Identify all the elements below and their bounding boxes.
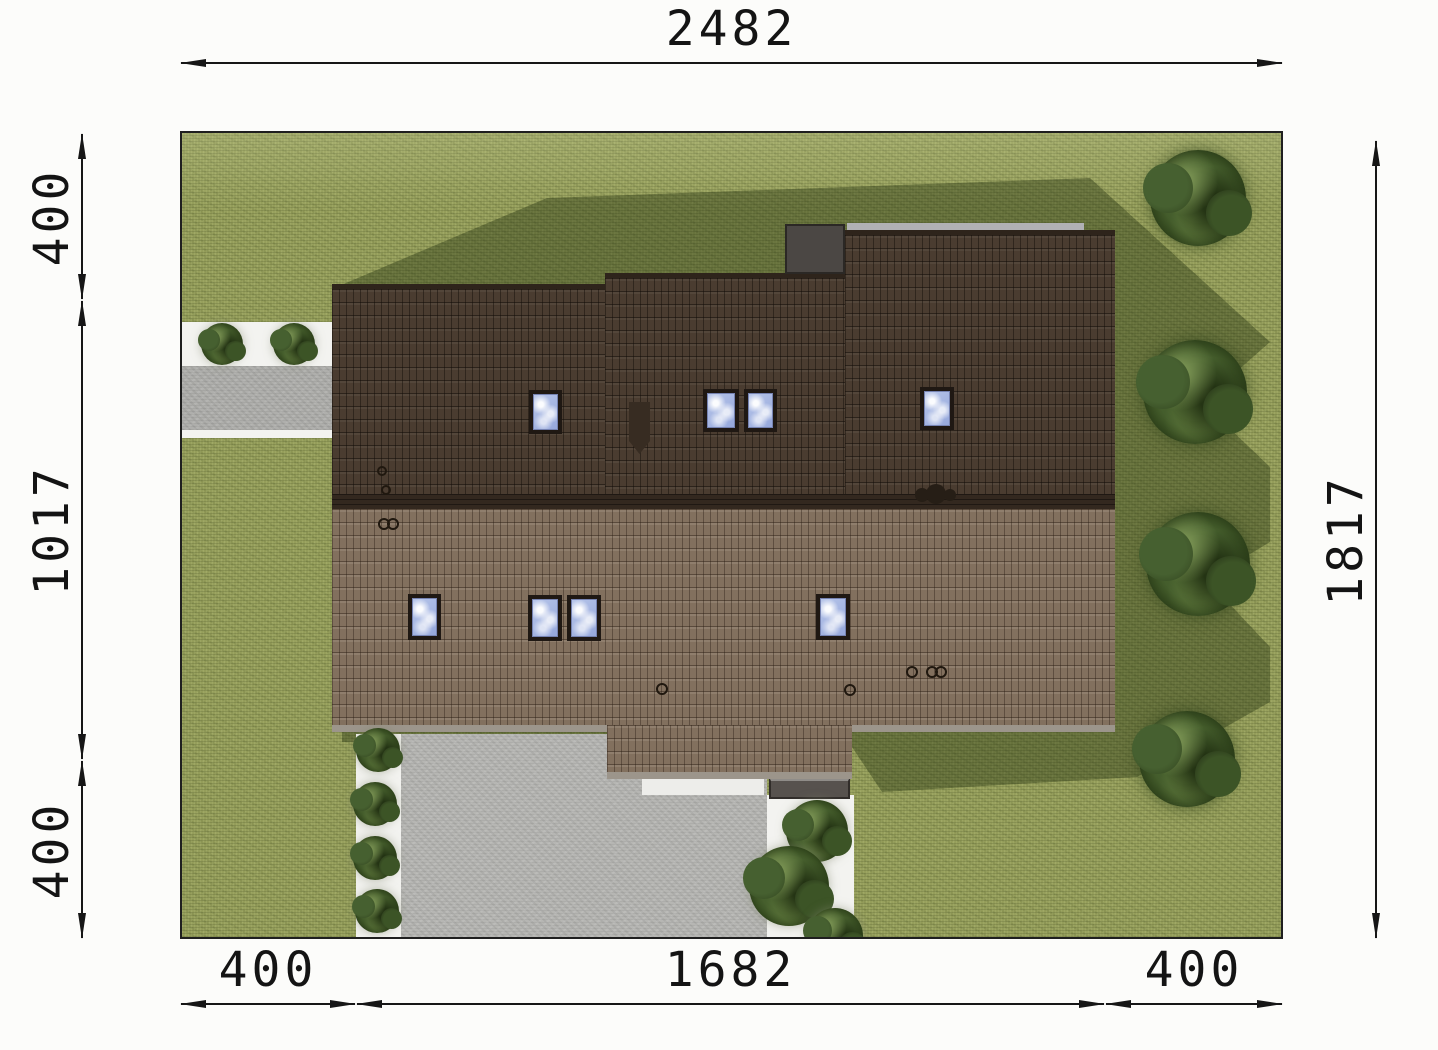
dimension-label: 400 — [1145, 946, 1244, 994]
site-plan-canvas: 2482400168240040010174001817 — [0, 0, 1438, 1050]
dimension-label: 1817 — [1322, 474, 1370, 606]
dimension-arrow — [1257, 1000, 1283, 1008]
dimension-arrow — [330, 1000, 356, 1008]
bush — [201, 323, 243, 365]
bush — [273, 323, 315, 365]
dimension-arrow — [1372, 140, 1380, 166]
dimension-arrow — [1257, 59, 1283, 67]
dimension-arrow — [356, 1000, 382, 1008]
dimension-line — [181, 62, 1282, 64]
dimension-arrow — [78, 133, 86, 159]
dimension-arrow — [78, 274, 86, 300]
dimension-arrow — [1079, 1000, 1105, 1008]
bush — [355, 889, 399, 933]
bush — [353, 836, 397, 880]
dimension-arrow — [78, 760, 86, 786]
dimension-label: 2482 — [666, 5, 798, 53]
dimension-label: 400 — [28, 167, 76, 266]
dimension-label: 400 — [28, 800, 76, 899]
dimension-arrow — [78, 913, 86, 939]
dimension-line — [357, 1003, 1104, 1005]
bush — [353, 782, 397, 826]
tree — [1139, 711, 1235, 807]
dimension-line — [81, 301, 83, 759]
dimension-arrow — [78, 300, 86, 326]
plot — [180, 131, 1283, 939]
dimension-arrow — [180, 59, 206, 67]
vegetation — [182, 133, 1281, 937]
dimension-arrow — [180, 1000, 206, 1008]
dimension-line — [1106, 1003, 1282, 1005]
bush — [356, 728, 400, 772]
dimension-line — [181, 1003, 355, 1005]
dimension-line — [1375, 141, 1377, 938]
dimension-arrow — [78, 734, 86, 760]
dimension-line — [81, 761, 83, 938]
dimension-label: 1017 — [28, 464, 76, 596]
dimension-arrow — [1105, 1000, 1131, 1008]
tree — [1146, 512, 1250, 616]
dimension-label: 400 — [219, 946, 318, 994]
tree — [1150, 150, 1246, 246]
dimension-arrow — [1372, 913, 1380, 939]
tree — [1143, 340, 1247, 444]
dimension-label: 1682 — [665, 946, 797, 994]
